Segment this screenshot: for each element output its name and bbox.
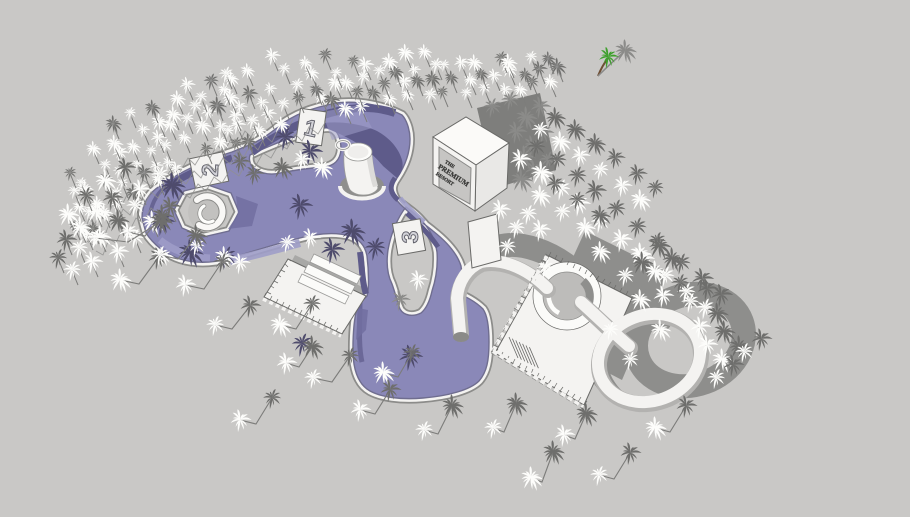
svg-text:3: 3 <box>397 231 423 244</box>
